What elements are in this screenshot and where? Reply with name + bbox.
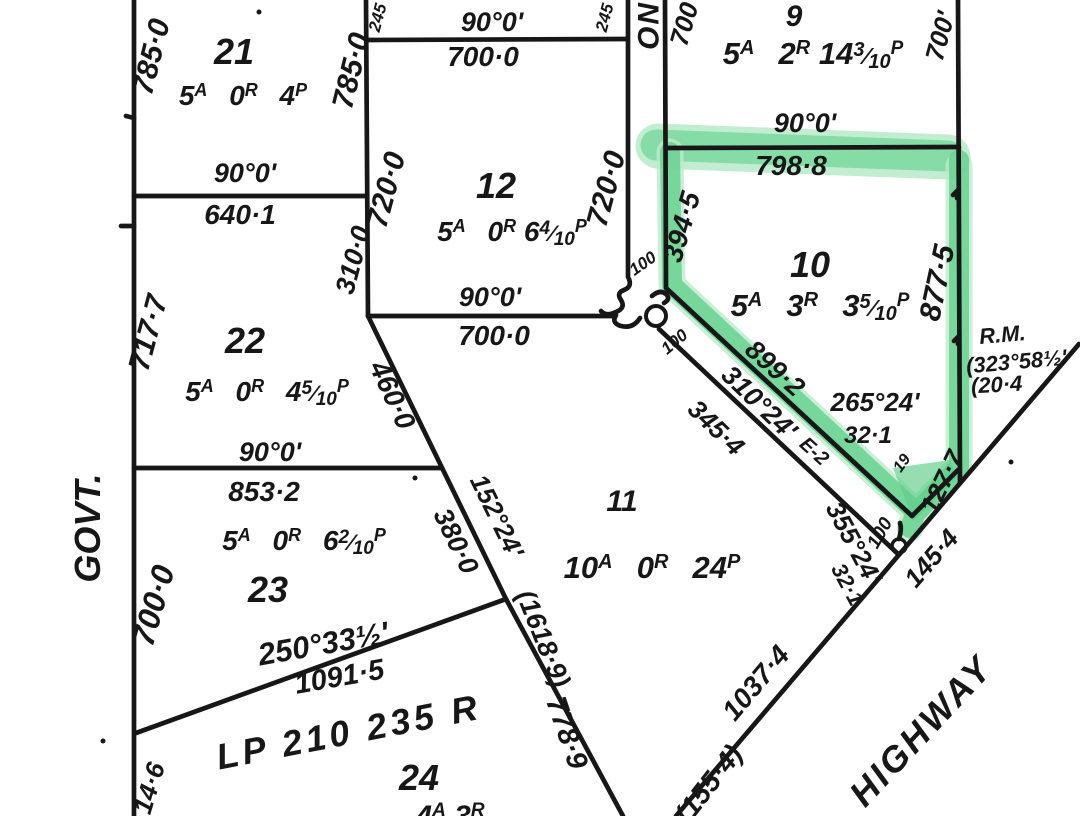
svg-text:R.M.: R.M. — [978, 320, 1026, 349]
svg-text:32·1: 32·1 — [844, 422, 892, 449]
svg-text:10A 0R 24P: 10A 0R 24P — [564, 550, 741, 585]
svg-text:90°0': 90°0' — [774, 108, 838, 138]
svg-text:90°0': 90°0' — [461, 7, 525, 37]
svg-text:10: 10 — [790, 244, 830, 285]
svg-text:NO: NO — [631, 2, 664, 51]
svg-text:798·8: 798·8 — [755, 150, 827, 181]
svg-text:90°0': 90°0' — [214, 158, 278, 188]
svg-text:21: 21 — [213, 31, 254, 72]
svg-text:853·2: 853·2 — [228, 476, 300, 507]
svg-text:700·0: 700·0 — [447, 41, 519, 72]
svg-text:700·0: 700·0 — [458, 320, 530, 351]
svg-text:12: 12 — [476, 165, 516, 206]
svg-text:22: 22 — [224, 320, 265, 361]
svg-text:90°0': 90°0' — [239, 437, 303, 467]
svg-text:(20·4: (20·4 — [970, 371, 1023, 399]
svg-text:4A 3R: 4A 3R — [414, 800, 484, 816]
svg-text:9: 9 — [786, 0, 803, 33]
svg-text:90°0': 90°0' — [459, 282, 523, 312]
svg-text:GOVT.: GOVT. — [67, 473, 108, 582]
svg-text:11: 11 — [606, 485, 637, 518]
svg-text:23: 23 — [247, 569, 288, 610]
svg-text:640·1: 640·1 — [204, 199, 276, 230]
svg-text:24: 24 — [398, 757, 439, 798]
svg-text:265°24': 265°24' — [830, 387, 921, 417]
